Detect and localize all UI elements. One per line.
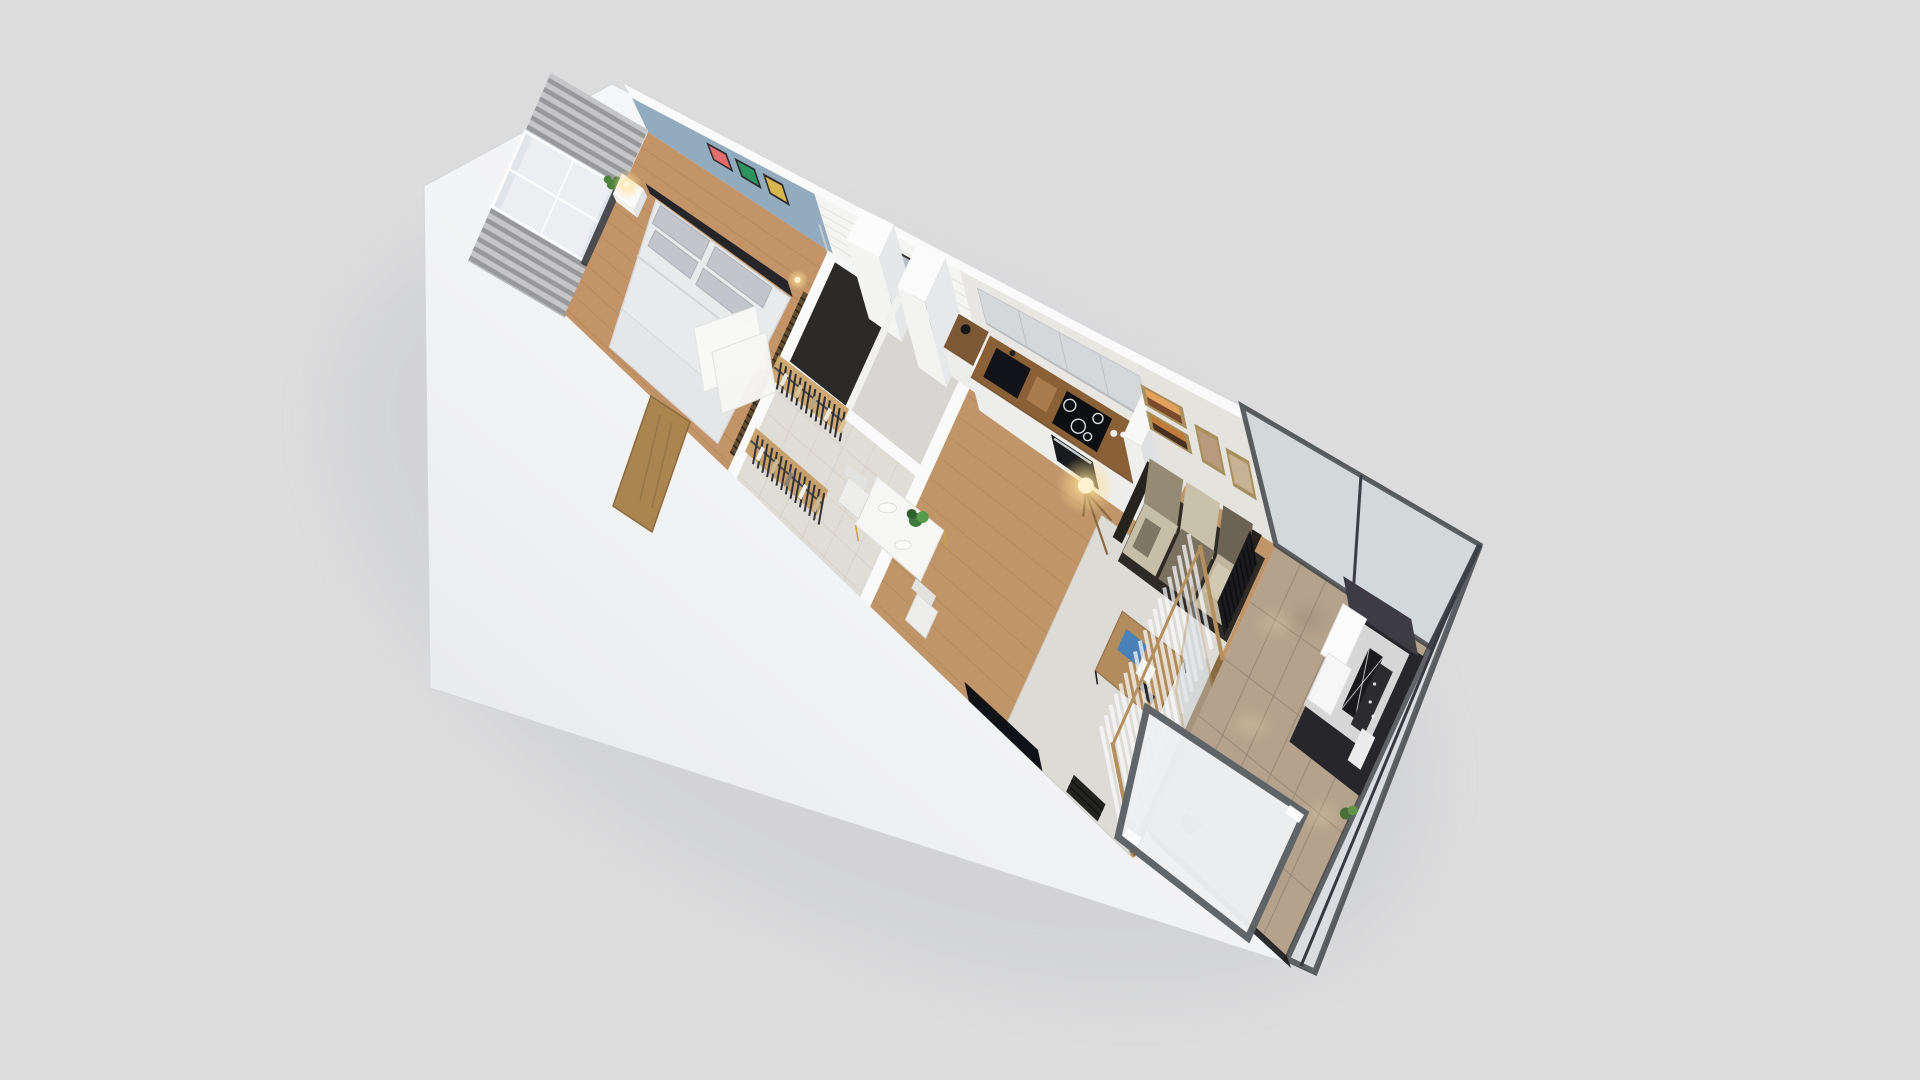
floorplan-3d-render — [0, 0, 1920, 1080]
scene-canvas — [0, 0, 1920, 1080]
